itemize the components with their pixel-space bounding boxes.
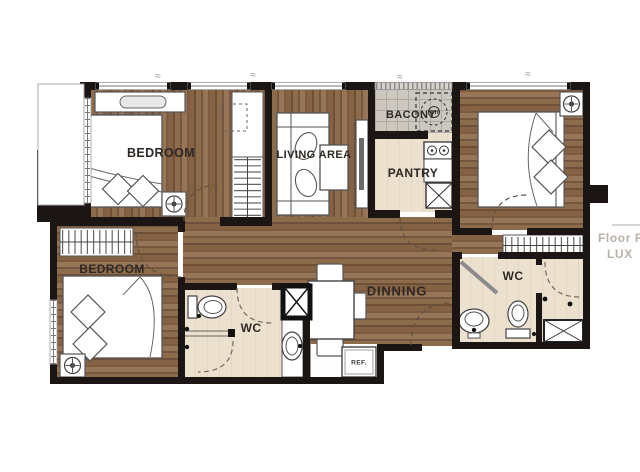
bedroom2-label: BEDROOM — [79, 262, 144, 276]
dining-label: DINNING — [367, 284, 428, 299]
window-top-4 — [467, 83, 570, 90]
shaft-box — [283, 286, 310, 318]
wardrobe-bedroom2 — [60, 228, 133, 256]
living-area-label: LIVING AREA — [277, 149, 352, 161]
window-left-bedroom2 — [50, 300, 57, 364]
window-top-2 — [188, 83, 250, 90]
bedroom3-bed — [478, 112, 568, 207]
entrance-door-arc — [411, 303, 453, 345]
fridge-label: REF. — [351, 360, 367, 367]
bedroom1-door-arc — [184, 185, 220, 221]
watermark-line1: Floor P — [598, 231, 640, 245]
side-ledge — [38, 84, 84, 205]
dining-table-set — [308, 264, 366, 356]
bedroom2-nightstand-fan — [60, 354, 85, 377]
wc2-toilet — [506, 301, 536, 338]
watermark-line2: LUX — [607, 247, 633, 261]
wc2-shower-screen — [461, 262, 497, 293]
dim-mark-3: ≈ — [397, 72, 403, 83]
stove — [424, 142, 452, 159]
wc1-divider — [183, 327, 235, 349]
dim-mark-2: ≈ — [250, 70, 256, 81]
window-top-3 — [272, 83, 345, 90]
wc1-door-arc — [237, 288, 272, 323]
dim-mark-1: ≈ — [155, 71, 161, 82]
pantry-door-arc — [400, 217, 435, 250]
wc1-label: WC — [241, 321, 262, 335]
wc2-label: WC — [503, 269, 524, 283]
dressing-door-arc — [545, 262, 580, 297]
bedroom1-nightstand-fan — [162, 192, 186, 216]
wc2-dressing-cabinet — [543, 297, 583, 342]
bedroom2-bed — [63, 276, 162, 361]
tv-console — [356, 120, 368, 208]
watermark-divider — [612, 224, 640, 226]
bedroom1-bed — [89, 115, 162, 207]
pantry-label: PANTRY — [388, 166, 438, 180]
bedroom1-label: BEDROOM — [127, 146, 195, 160]
plan-linework: WH — [0, 0, 640, 472]
wc1-inner-door-arc — [198, 341, 233, 372]
window-top-1 — [96, 83, 170, 90]
dimension-marks: ≈ ≈ ≈ ≈ — [155, 69, 531, 83]
bedroom1-dresser — [95, 92, 185, 112]
floor-plan: WH — [0, 0, 640, 472]
wc1-toilet — [188, 296, 226, 318]
balcony-louver-band — [375, 83, 452, 90]
dim-mark-4: ≈ — [525, 69, 531, 80]
wc2-sink — [459, 309, 489, 338]
balcony-label: BACONY — [386, 109, 436, 121]
bedroom3-nightstand-fan — [560, 92, 583, 116]
window-left-bedroom1 — [84, 98, 91, 203]
wc1-sink — [282, 318, 303, 377]
